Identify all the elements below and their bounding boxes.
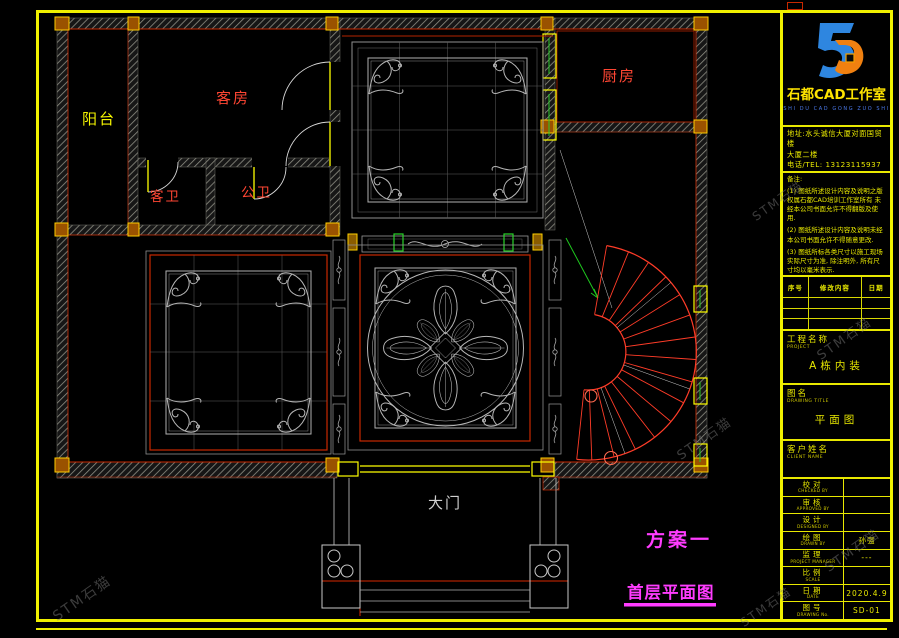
- door-openings: [146, 62, 341, 168]
- signoff-label: 比例: [802, 569, 823, 577]
- note-3: (3) 图纸所标各类尺寸以施工现场实际尺寸为准, 除注明外, 所有尺寸均以毫米表…: [787, 248, 886, 275]
- signoff-value: 2020.4.9: [844, 585, 890, 602]
- revision-header-date: 日期: [862, 277, 890, 298]
- signoff-label-en: DRAWN BY: [801, 542, 826, 546]
- signoff-label-en: APPROVED BY: [797, 507, 830, 511]
- drawing-title-section: 图名 DRAWING TITLE 平面图: [783, 383, 890, 439]
- revision-header-content: 修改内容: [809, 277, 863, 298]
- drawing-title-label: 图名: [787, 387, 886, 399]
- signoff-value: [844, 497, 890, 514]
- column-blocks: [55, 17, 708, 472]
- signoff-value: [844, 479, 890, 496]
- notes-title: 备注:: [787, 175, 886, 184]
- revision-cell: [809, 298, 863, 309]
- spiral-staircase: [560, 150, 696, 465]
- signoff-row-supervisor: 监理PROJECT MANAGER ---: [783, 549, 890, 567]
- signoff-row-drawn: 绘图DRAWN BY 孙强: [783, 531, 890, 549]
- project-label-en: PROJECT: [787, 345, 886, 350]
- signoff-row-scale: 比例SCALE: [783, 566, 890, 584]
- signoff-value: 孙强: [844, 532, 890, 549]
- ceiling-central-hall: [348, 245, 543, 450]
- project-value: A栋内装: [787, 358, 886, 373]
- signoff-row-approved: 审核APPROVED BY: [783, 496, 890, 514]
- room-label-kitchen: 厨房: [602, 67, 636, 85]
- studio-logo: [806, 19, 868, 81]
- signoff-label: 校对: [802, 481, 823, 489]
- signoff-row-date: 日期DATE 2020.4.9: [783, 584, 890, 602]
- drawing-caption-underline: [624, 603, 716, 607]
- address-section: 地址:水头诚信大厦对面国贸楼 大厦二楼 电话/TEL: 13123115937: [783, 125, 890, 171]
- sheet-top-mark: [787, 2, 803, 10]
- project-label: 工程名称: [787, 333, 886, 345]
- walls-group: [57, 18, 707, 490]
- signoff-label: 监理: [802, 551, 823, 559]
- drawing-title-en: DRAWING TITLE: [787, 399, 886, 404]
- signoff-value: [844, 514, 890, 531]
- project-section: 工程名称 PROJECT A栋内装: [783, 329, 890, 383]
- revision-cell: [809, 309, 863, 320]
- drawing-caption: 首层平面图: [627, 582, 715, 602]
- client-section: 客户姓名 CLIENT NAME: [783, 439, 890, 477]
- title-block: 石都CAD工作室 SHI DU CAD GONG ZUO SHI 地址:水头诚信…: [780, 10, 893, 622]
- client-label: 客户姓名: [787, 443, 886, 455]
- transom-beam: [348, 234, 542, 252]
- revision-cell: [783, 309, 809, 320]
- ceiling-top-room: [342, 36, 553, 218]
- signoff-section: 校对CHECKED BY 审核APPROVED BY 设计DESIGNED BY…: [783, 477, 890, 619]
- room-label-balcony: 阳台: [82, 110, 116, 128]
- revision-cell: [809, 319, 863, 329]
- signoff-label-en: PROJECT MANAGER: [790, 560, 835, 564]
- signoff-label: 日期: [802, 587, 823, 595]
- studio-pinyin: SHI DU CAD GONG ZUO SHI: [783, 106, 889, 112]
- address-line2: 大厦二楼: [787, 150, 886, 160]
- revision-header-no: 序号: [783, 277, 809, 298]
- ceiling-left-room: [146, 251, 331, 454]
- revision-table: 序号 修改内容 日期: [783, 275, 890, 329]
- scheme-label: 方案一: [646, 528, 712, 551]
- phone-line: 电话/TEL: 13123115937: [787, 160, 886, 170]
- studio-name: 石都CAD工作室: [787, 83, 886, 103]
- note-2: (2) 图纸所述设计内容及说明未经本公司书面允许不得随意更改.: [787, 226, 886, 244]
- signoff-label: 设计: [802, 516, 823, 524]
- signoff-value: ---: [844, 550, 890, 567]
- revision-cell: [783, 319, 809, 329]
- signoff-label: 绘图: [802, 534, 823, 542]
- studio-logo-section: 石都CAD工作室 SHI DU CAD GONG ZUO SHI: [783, 13, 890, 125]
- room-label-public-bath: 公卫: [241, 185, 272, 201]
- client-label-en: CLIENT NAME: [787, 455, 886, 460]
- note-1: (1) 图纸所述设计内容及说明之版权属石都CAD培训工作室所有 未经本公司书面允…: [787, 187, 886, 223]
- signoff-label: 审核: [802, 499, 823, 507]
- signoff-label-en: DRAWING No.: [797, 613, 829, 617]
- signoff-row-designed: 设计DESIGNED BY: [783, 513, 890, 531]
- signoff-value: [844, 567, 890, 584]
- floor-plan: 阳台 客房 客卫 公卫 厨房 大门 方案一 首层平面图: [0, 0, 782, 638]
- signoff-label-en: SCALE: [805, 578, 820, 582]
- revision-cell: [783, 298, 809, 309]
- room-label-guest-bath: 客卫: [150, 188, 181, 205]
- revision-cell: [862, 298, 890, 309]
- drawing-title-value: 平面图: [787, 412, 886, 427]
- logo-inner-square: [846, 54, 854, 62]
- signoff-label-en: DATE: [807, 595, 819, 599]
- ceiling-medallion: [368, 270, 524, 426]
- signoff-label-en: DESIGNED BY: [797, 525, 829, 529]
- signoff-row-checked: 校对CHECKED BY: [783, 479, 890, 496]
- signoff-label: 图号: [802, 604, 823, 612]
- revision-cell: [862, 309, 890, 320]
- signoff-value: SD-01: [844, 602, 890, 619]
- signoff-row-number: 图号DRAWING No. SD-01: [783, 601, 890, 619]
- room-label-main-gate: 大门: [428, 494, 462, 512]
- revision-cell: [862, 319, 890, 329]
- signoff-label-en: CHECKED BY: [798, 489, 828, 493]
- room-label-guest-room: 客房: [216, 89, 250, 107]
- address-line1: 地址:水头诚信大厦对面国贸楼: [787, 129, 886, 150]
- notes-section: 备注: (1) 图纸所述设计内容及说明之版权属石都CAD培训工作室所有 未经本公…: [783, 171, 890, 275]
